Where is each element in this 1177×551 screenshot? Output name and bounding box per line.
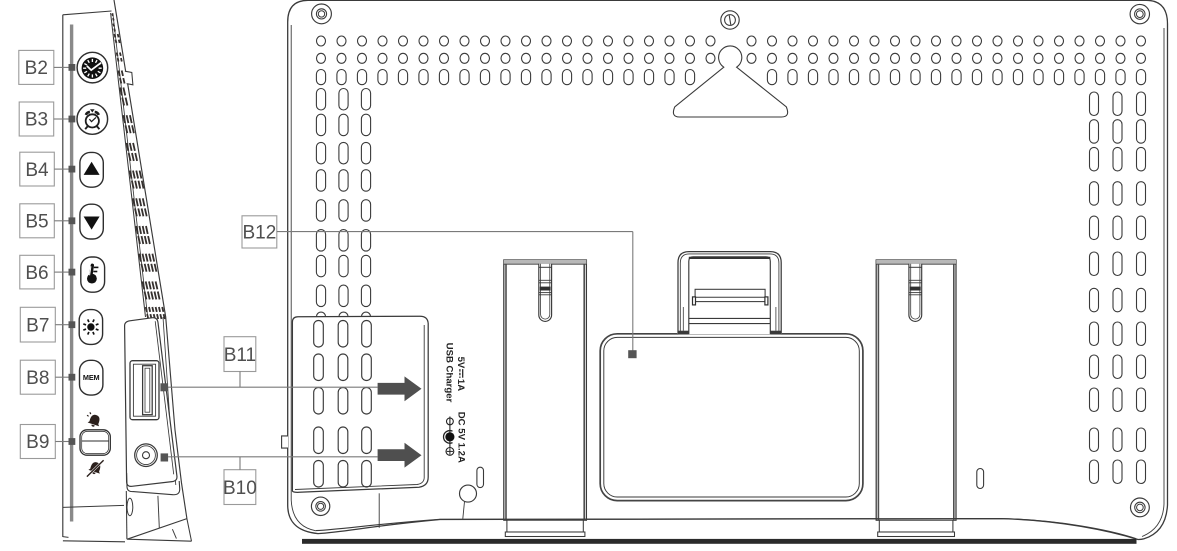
svg-text:B10: B10 bbox=[223, 478, 257, 499]
svg-text:1A: 1A bbox=[455, 379, 466, 391]
svg-text:B11: B11 bbox=[224, 345, 256, 366]
svg-text:DC 5V 1.2A: DC 5V 1.2A bbox=[456, 412, 467, 463]
svg-text:B4: B4 bbox=[25, 160, 49, 181]
svg-text:USB Charger: USB Charger bbox=[444, 343, 455, 403]
svg-text:B7: B7 bbox=[26, 315, 49, 336]
svg-text:B6: B6 bbox=[25, 263, 48, 284]
svg-text:B2: B2 bbox=[25, 58, 48, 79]
svg-text:B5: B5 bbox=[25, 212, 48, 233]
svg-text:MEM: MEM bbox=[83, 373, 100, 382]
svg-text:B8: B8 bbox=[26, 368, 49, 389]
svg-text:5V: 5V bbox=[455, 357, 466, 369]
svg-text:B3: B3 bbox=[25, 110, 48, 131]
svg-text:B12: B12 bbox=[242, 223, 276, 244]
svg-text:B9: B9 bbox=[26, 432, 49, 453]
